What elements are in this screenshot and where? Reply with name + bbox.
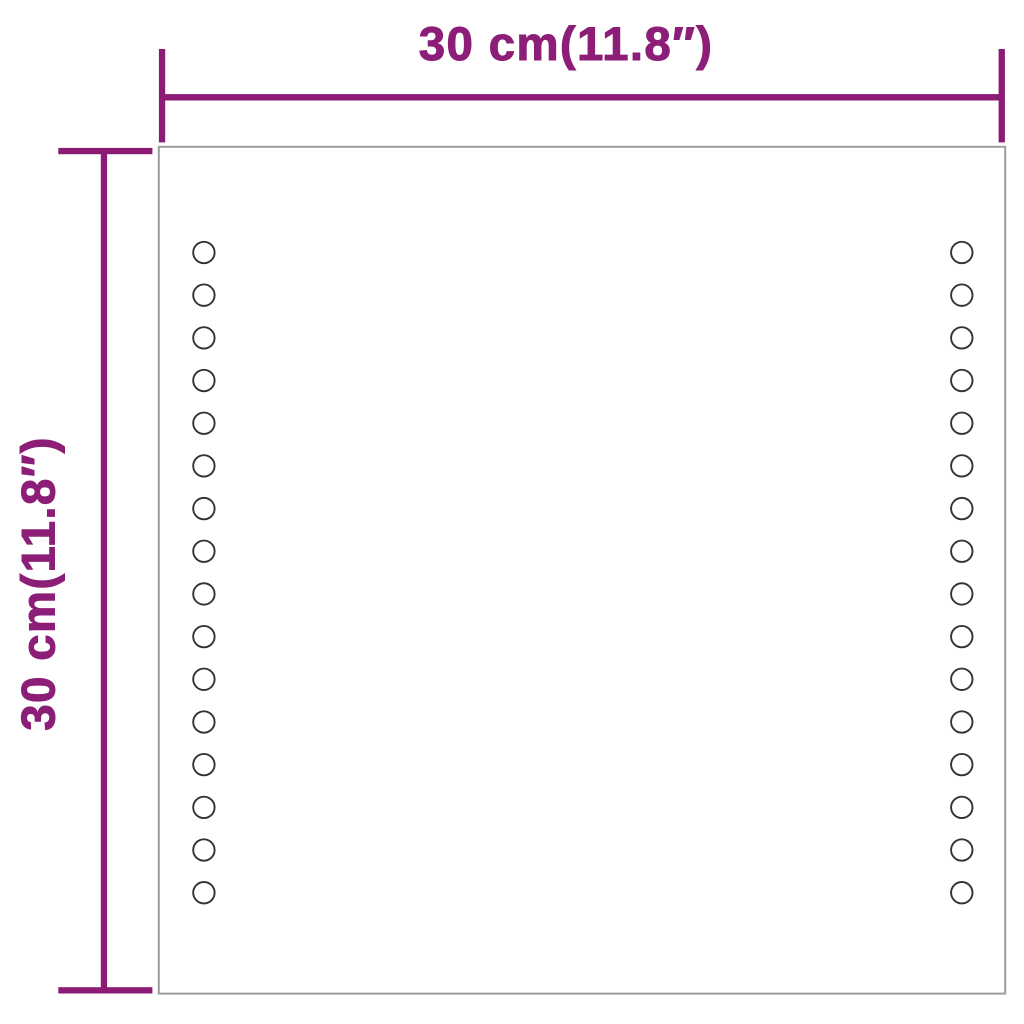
- svg-text:30 cm(11.8″): 30 cm(11.8″): [13, 436, 66, 731]
- svg-text:30 cm(11.8″): 30 cm(11.8″): [419, 18, 714, 71]
